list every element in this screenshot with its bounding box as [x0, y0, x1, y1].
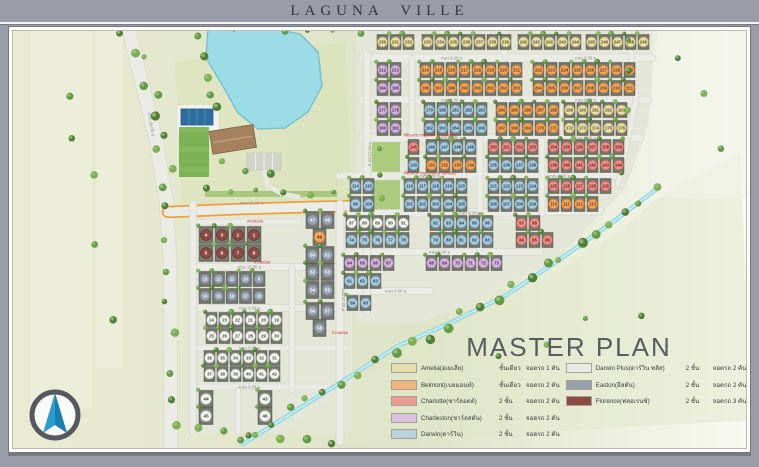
- lot-number: 98: [532, 221, 537, 226]
- legend-floors: 2 ชั้น: [686, 396, 713, 406]
- tree-highlight: [494, 118, 496, 120]
- tree-highlight: [356, 230, 358, 232]
- tree-highlight: [395, 230, 397, 232]
- tree-highlight: [243, 169, 246, 172]
- lot-number: 139: [550, 163, 558, 168]
- tree-highlight: [360, 176, 362, 178]
- lot-number: 161: [392, 126, 400, 131]
- lot-number: 108: [516, 202, 524, 207]
- tree-highlight: [378, 147, 380, 149]
- lot-number: 82: [472, 238, 477, 243]
- road-label: ถนน 9.00 ม.: [575, 98, 598, 103]
- tree-highlight: [498, 155, 500, 157]
- tree-highlight: [467, 230, 469, 232]
- lot-number: 143: [602, 163, 610, 168]
- lot-number: 78: [401, 238, 406, 243]
- site-map: 2302312322332342352362372382392402412422…: [12, 30, 747, 449]
- legend-parking: จอดรถ 1 คัน: [526, 363, 560, 373]
- tree-highlight: [482, 60, 485, 63]
- lot-number: 219: [487, 68, 495, 73]
- tree-highlight: [445, 325, 449, 329]
- lot-number: 159: [615, 145, 623, 150]
- tree-highlight: [567, 32, 569, 34]
- tree-highlight: [585, 194, 587, 196]
- lot-number: 51: [325, 253, 331, 259]
- lot-number: 1: [253, 233, 256, 239]
- tree-highlight: [585, 176, 587, 178]
- tree-highlight: [201, 53, 205, 57]
- lot-number: 70: [455, 261, 460, 266]
- road-label: ถนน 9.00 ม.: [441, 56, 464, 61]
- lot-number: 63: [373, 279, 378, 284]
- tree-highlight: [406, 155, 408, 157]
- lot-number: 185: [511, 108, 519, 113]
- tree-highlight: [281, 190, 284, 193]
- lot-number: 83: [485, 238, 490, 243]
- tree-highlight: [436, 155, 438, 157]
- lot-number: 151: [503, 145, 511, 150]
- lot-number: 166: [478, 126, 486, 131]
- tree-highlight: [318, 209, 320, 211]
- legend-color-swatch: [391, 363, 417, 373]
- tree-highlight: [610, 155, 613, 158]
- lot-number: 134: [467, 163, 475, 168]
- tree-highlight: [369, 230, 372, 233]
- lot-number: 194: [379, 86, 387, 91]
- legend-floors: 2 ชั้น: [686, 380, 713, 390]
- lot-number: 107: [503, 202, 511, 207]
- tree-highlight: [358, 31, 361, 34]
- tree-highlight: [546, 155, 548, 157]
- lot-number: 17: [243, 294, 248, 299]
- lot-number: 127: [576, 184, 584, 189]
- tree-highlight: [227, 348, 230, 351]
- lot-number: 172: [566, 126, 574, 131]
- lot-number: 37: [207, 372, 212, 377]
- tree-highlight: [241, 364, 243, 366]
- tree-highlight: [587, 118, 590, 121]
- tree-highlight: [545, 118, 547, 120]
- lot-number: 56: [310, 309, 316, 315]
- tree-highlight: [414, 176, 416, 178]
- lot-number: 20: [261, 318, 266, 323]
- tree-highlight: [383, 230, 385, 232]
- tree-highlight: [381, 253, 383, 255]
- tree-highlight: [400, 32, 403, 35]
- tree-highlight: [430, 78, 432, 80]
- lot-number: 58: [317, 326, 323, 332]
- road-label: ถนน 12.00 ม.: [368, 143, 373, 168]
- tree-highlight: [395, 213, 397, 215]
- lot-number: 158: [602, 145, 610, 150]
- road-label: ถนน 10.00 ม.: [238, 265, 263, 270]
- tree-highlight: [457, 78, 459, 80]
- tree-highlight: [229, 190, 232, 193]
- tree-highlight: [153, 146, 156, 149]
- lot-number: 208: [587, 86, 595, 91]
- lot-number: 221: [513, 68, 521, 73]
- tree-highlight: [613, 118, 615, 120]
- tree-highlight: [541, 32, 544, 35]
- tree-highlight: [508, 78, 510, 80]
- tree-highlight: [197, 269, 199, 271]
- lot-number: 6: [221, 251, 224, 257]
- lawn-stripe: [179, 147, 209, 152]
- tree-highlight: [117, 31, 120, 34]
- lot-number: 102: [419, 202, 427, 207]
- tree-highlight: [162, 238, 165, 241]
- tree-highlight: [621, 78, 623, 80]
- tree-highlight: [526, 213, 528, 215]
- tree-highlight: [223, 286, 226, 289]
- lot-number: 99: [353, 202, 358, 207]
- tree-highlight: [422, 118, 424, 120]
- legend-parking: จอดรถ 3 คัน: [713, 396, 747, 406]
- lot-number: 149: [467, 145, 475, 150]
- tree-highlight: [475, 253, 477, 255]
- tree-highlight: [428, 213, 430, 215]
- lot-number: 114: [352, 184, 360, 189]
- tree-highlight: [195, 33, 198, 36]
- lot-number: 71: [468, 261, 473, 266]
- lot-number: 103: [432, 202, 440, 207]
- title-bar: LAGUNA VILLE: [0, 0, 759, 22]
- tree-highlight: [348, 176, 350, 178]
- lot-number: 24: [209, 318, 214, 323]
- tree-highlight: [308, 192, 311, 195]
- lot-number: 207: [574, 86, 582, 91]
- tree-highlight: [375, 118, 377, 120]
- tree-highlight: [254, 188, 256, 190]
- lot-number: 96: [485, 221, 490, 226]
- lot-number: 81: [459, 238, 464, 243]
- lot-number: 228: [613, 68, 621, 73]
- lot-number: 95: [472, 221, 477, 226]
- tree-highlight: [422, 100, 424, 102]
- tree-highlight: [229, 326, 232, 329]
- lot-number: 205: [548, 86, 556, 91]
- lot-number: 97: [519, 221, 524, 226]
- northeast-open-field: [652, 30, 747, 198]
- west-field: [30, 30, 92, 408]
- legend-parking: จอดรถ 2 คัน: [526, 396, 560, 406]
- lot-number: 41: [259, 372, 264, 377]
- tree-highlight: [473, 118, 475, 120]
- tree-highlight: [375, 60, 377, 62]
- tree-highlight: [506, 118, 508, 120]
- tree-highlight: [214, 104, 218, 108]
- tree-highlight: [173, 422, 177, 426]
- lot-number: 156: [576, 145, 584, 150]
- lot-number: 109: [529, 202, 537, 207]
- tree-highlight: [197, 224, 199, 226]
- tree-highlight: [195, 425, 199, 429]
- tree-highlight: [583, 317, 585, 319]
- tree-highlight: [593, 231, 597, 235]
- tree-highlight: [245, 242, 247, 244]
- tree-highlight: [511, 176, 514, 179]
- tree-highlight: [318, 244, 320, 246]
- lot-number: 179: [426, 108, 434, 113]
- legend-column: Darwin Plus(ดาร์วิน พลัส)2 ชั้นจอดรถ 2 ค…: [566, 362, 747, 445]
- tree-highlight: [558, 155, 560, 157]
- lot-number: 18: [257, 294, 262, 299]
- tree-highlight: [443, 78, 446, 81]
- lot-number: 132: [441, 163, 449, 168]
- lot-number: 130: [410, 163, 418, 168]
- legend-item: Amelia(อเมเลีย)ชั้นเดียวจอดรถ 1 คัน: [391, 362, 560, 374]
- tree-highlight: [453, 194, 455, 196]
- lot-number: 186: [524, 108, 532, 113]
- road-label: ถนน 9.00 ม.: [549, 174, 572, 179]
- lot-number: 147: [441, 145, 449, 150]
- lot-number: 232: [405, 40, 413, 45]
- lot-number: 26: [222, 334, 227, 339]
- lot-number: 226: [587, 68, 595, 73]
- tree-highlight: [212, 224, 214, 226]
- lot-number: 196: [422, 86, 430, 91]
- legend-floors: 2 ชั้น: [499, 429, 526, 439]
- lot-number: 220: [500, 68, 508, 73]
- lot-number: 133: [454, 163, 462, 168]
- lot-number: 2: [237, 233, 240, 239]
- tree-highlight: [393, 349, 397, 353]
- tree-highlight: [626, 68, 629, 71]
- lot-number: 170: [537, 126, 545, 131]
- lot-number: 224: [561, 68, 569, 73]
- tree-highlight: [212, 242, 214, 244]
- tree-highlight: [167, 371, 170, 374]
- tree-highlight: [268, 310, 271, 313]
- tree-highlight: [514, 213, 516, 215]
- tree-highlight: [543, 78, 545, 80]
- lot-number: 29: [261, 334, 266, 339]
- lot-number: 203: [513, 86, 521, 91]
- tree-highlight: [562, 100, 564, 102]
- tree-highlight: [379, 196, 382, 199]
- lot-number: 176: [618, 126, 626, 131]
- tree-highlight: [162, 203, 165, 206]
- lot-number: 183: [478, 108, 486, 113]
- lot-number: 93: [446, 221, 451, 226]
- tree-highlight: [339, 382, 343, 386]
- lot-number: 3: [221, 233, 224, 239]
- tree-highlight: [304, 244, 306, 246]
- tree-highlight: [320, 390, 323, 393]
- lot-number: 73: [494, 261, 499, 266]
- tree-highlight: [204, 310, 206, 312]
- tree-highlight: [440, 213, 442, 215]
- lot-number: 28: [248, 334, 253, 339]
- tree-highlight: [463, 253, 465, 255]
- tree-highlight: [210, 269, 212, 271]
- lot-number: 128: [589, 184, 597, 189]
- lot-number: 85: [532, 238, 537, 243]
- tree-highlight: [172, 329, 176, 333]
- tree-highlight: [170, 166, 174, 170]
- tree-highlight: [609, 32, 612, 35]
- tree-highlight: [141, 83, 145, 87]
- lot-number: 35: [220, 356, 225, 361]
- tree-highlight: [718, 146, 721, 149]
- tree-highlight: [155, 92, 159, 96]
- lot-number: 10: [243, 277, 248, 282]
- lot-number: 174: [592, 126, 600, 131]
- tree-highlight: [486, 155, 488, 157]
- tree-highlight: [676, 56, 679, 59]
- lot-number: 171: [550, 126, 558, 131]
- lot-number: 4: [205, 233, 208, 239]
- tree-highlight: [597, 155, 599, 157]
- tree-highlight: [372, 357, 375, 360]
- tree-highlight: [269, 423, 272, 426]
- tree-highlight: [579, 239, 583, 243]
- tree-highlight: [453, 230, 456, 233]
- lot-number: 16: [230, 294, 235, 299]
- lot-number: 131: [428, 163, 436, 168]
- tree-highlight: [220, 159, 223, 162]
- lot-number: 48: [325, 218, 331, 224]
- tree-highlight: [253, 433, 256, 436]
- master-plan-title: MASTER PLAN: [453, 332, 685, 363]
- lot-number: 40: [246, 372, 251, 377]
- lot-number: 189: [566, 108, 574, 113]
- legend-name: Florence(ฟลอเรนซ์): [596, 396, 686, 406]
- lot-number: 118: [432, 184, 440, 189]
- tree-highlight: [342, 253, 344, 255]
- tree-highlight: [609, 78, 611, 80]
- lot-number: 191: [592, 108, 600, 113]
- lot-number: 52: [310, 270, 316, 276]
- tree-highlight: [571, 137, 574, 140]
- lot-number: 46: [262, 414, 268, 420]
- tree-highlight: [562, 118, 564, 120]
- tree-highlight: [556, 258, 559, 261]
- tree-highlight: [253, 364, 255, 366]
- lot-number: 84: [519, 238, 524, 243]
- lot-number: 214: [422, 68, 430, 73]
- tree-highlight: [169, 397, 172, 400]
- tree-highlight: [142, 55, 144, 57]
- tree-highlight: [488, 253, 491, 256]
- tree-highlight: [387, 118, 389, 120]
- tree-highlight: [402, 176, 404, 178]
- tree-highlight: [701, 91, 704, 94]
- tree-highlight: [545, 100, 547, 102]
- tree-highlight: [519, 118, 522, 121]
- legend-parking: จอดรถ 2 คัน: [526, 429, 560, 439]
- lot-number: 145: [410, 145, 418, 150]
- lot-number: 115: [365, 184, 373, 189]
- lot-number: 65: [360, 261, 365, 266]
- tree-highlight: [511, 194, 514, 197]
- tree-highlight: [91, 172, 94, 175]
- tree-highlight: [626, 38, 628, 40]
- lot-number: 53: [325, 270, 331, 276]
- lot-number: 91: [401, 221, 406, 226]
- tree-highlight: [277, 436, 281, 440]
- tree-highlight: [531, 78, 533, 80]
- lot-number: 38: [220, 372, 225, 377]
- lot-number: 125: [550, 184, 558, 189]
- lot-number: 146: [428, 145, 436, 150]
- road-label: ถนน 12.00 ม.: [341, 288, 346, 313]
- tree-highlight: [237, 286, 239, 288]
- lot-number: 122: [503, 184, 511, 189]
- tree-highlight: [427, 336, 431, 340]
- lot-number: 19: [274, 318, 279, 323]
- north-compass: [26, 386, 84, 444]
- plan-panel: 2302312322332342352362372382392402412422…: [8, 26, 751, 453]
- legend-color-swatch: [391, 396, 417, 406]
- road-label: ถนน 16.00 ม.: [240, 201, 265, 206]
- lot-number: 169: [524, 126, 532, 131]
- lot-number: 241: [533, 40, 541, 45]
- tree-highlight: [164, 270, 167, 273]
- lot-number: 180: [439, 108, 447, 113]
- lot-number: 54: [310, 288, 316, 294]
- lot-number: 187: [537, 108, 545, 113]
- lot-number: 39: [233, 372, 238, 377]
- legend-item: Charlotte(ชาร์ลอตต์)2 ชั้นจอดรถ 2 คัน: [391, 395, 560, 407]
- lot-number: 234: [437, 40, 445, 45]
- tree-highlight: [546, 176, 548, 178]
- tree-highlight: [387, 78, 389, 80]
- lot-number: 34: [233, 356, 238, 361]
- legend-item: Easton(อีสตัน)2 ชั้นจอดรถ 2 คัน: [566, 379, 747, 391]
- lot-number: 167: [498, 126, 506, 131]
- tree-highlight: [229, 310, 232, 313]
- lot-number: 238: [489, 40, 497, 45]
- tree-highlight: [369, 213, 372, 216]
- tree-highlight: [526, 230, 528, 232]
- tree-highlight: [445, 32, 448, 35]
- lot-number: 42: [272, 372, 277, 377]
- tree-highlight: [210, 286, 212, 288]
- tree-highlight: [469, 60, 471, 62]
- lot-number: 119: [445, 184, 453, 189]
- tree-highlight: [342, 271, 344, 273]
- lot-number: 197: [435, 86, 443, 91]
- tree-highlight: [482, 78, 485, 81]
- lot-number: 92: [433, 221, 438, 226]
- lot-number: 61: [347, 279, 352, 284]
- tree-highlight: [625, 108, 628, 111]
- legend-parking: จอดรถ 2 คัน: [713, 380, 747, 390]
- lot-number: 210: [613, 86, 621, 91]
- tree-highlight: [268, 171, 272, 175]
- lot-number: 212: [379, 68, 387, 73]
- west-field: [96, 30, 122, 368]
- tree-highlight: [375, 78, 377, 80]
- tree-highlight: [609, 60, 611, 62]
- legend-floors: 2 ชั้น: [499, 396, 526, 406]
- lot-number: 90: [388, 221, 393, 226]
- tree-highlight: [496, 60, 498, 62]
- tree-highlight: [457, 309, 460, 312]
- lot-number: 137: [516, 163, 524, 168]
- lawn-stripe: [179, 127, 209, 132]
- tree-highlight: [596, 32, 598, 34]
- lot-number: 152: [516, 145, 524, 150]
- lot-number: 211: [626, 86, 634, 91]
- lot-number: 5: [205, 251, 208, 257]
- lot-number: 69: [442, 261, 447, 266]
- lot-number: 233: [424, 40, 432, 45]
- lot-number: 144: [615, 163, 623, 168]
- tree-highlight: [204, 186, 207, 189]
- tree-highlight: [546, 194, 548, 196]
